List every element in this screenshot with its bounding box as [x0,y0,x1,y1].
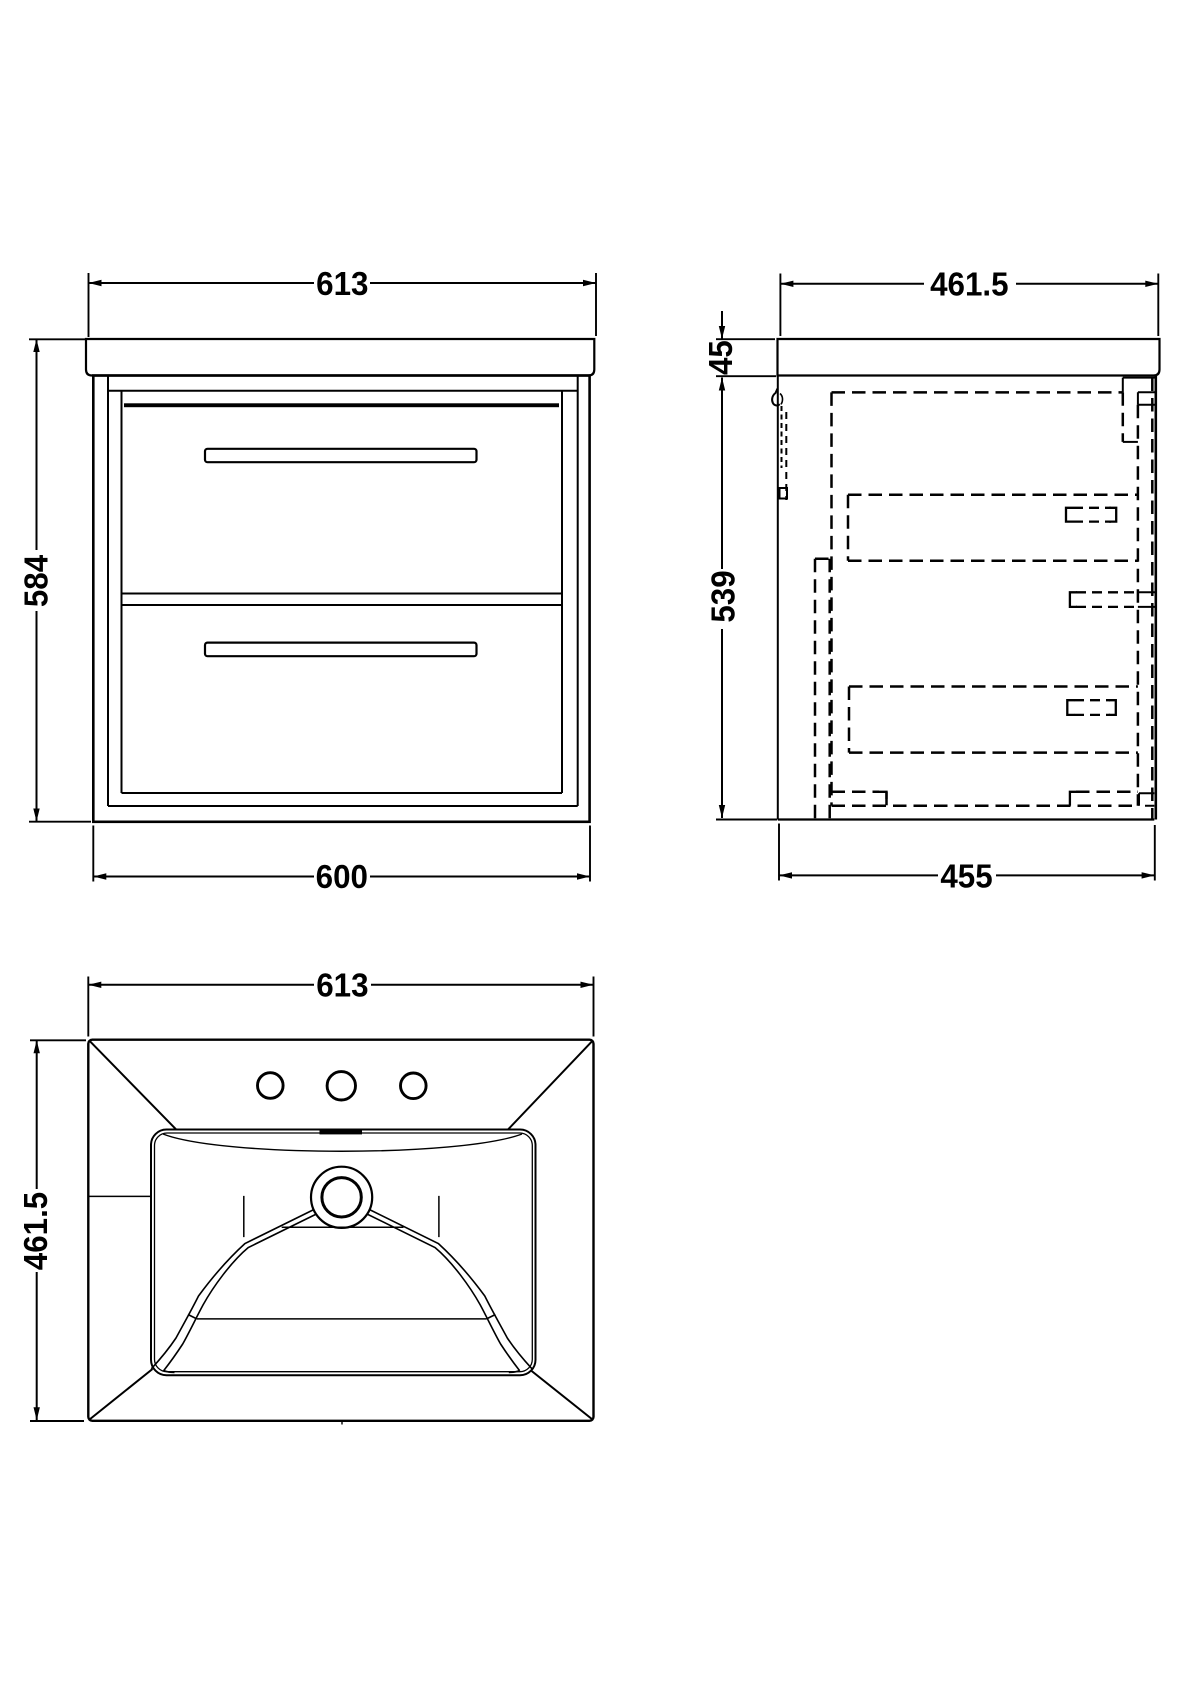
svg-text:45: 45 [702,340,739,375]
svg-text:600: 600 [316,858,368,895]
svg-text:461.5: 461.5 [17,1192,54,1270]
svg-text:584: 584 [18,555,55,607]
svg-text:613: 613 [316,967,368,1004]
svg-text:461.5: 461.5 [930,266,1008,303]
svg-text:455: 455 [940,858,992,895]
svg-text:539: 539 [705,570,742,622]
svg-text:613: 613 [316,265,368,302]
